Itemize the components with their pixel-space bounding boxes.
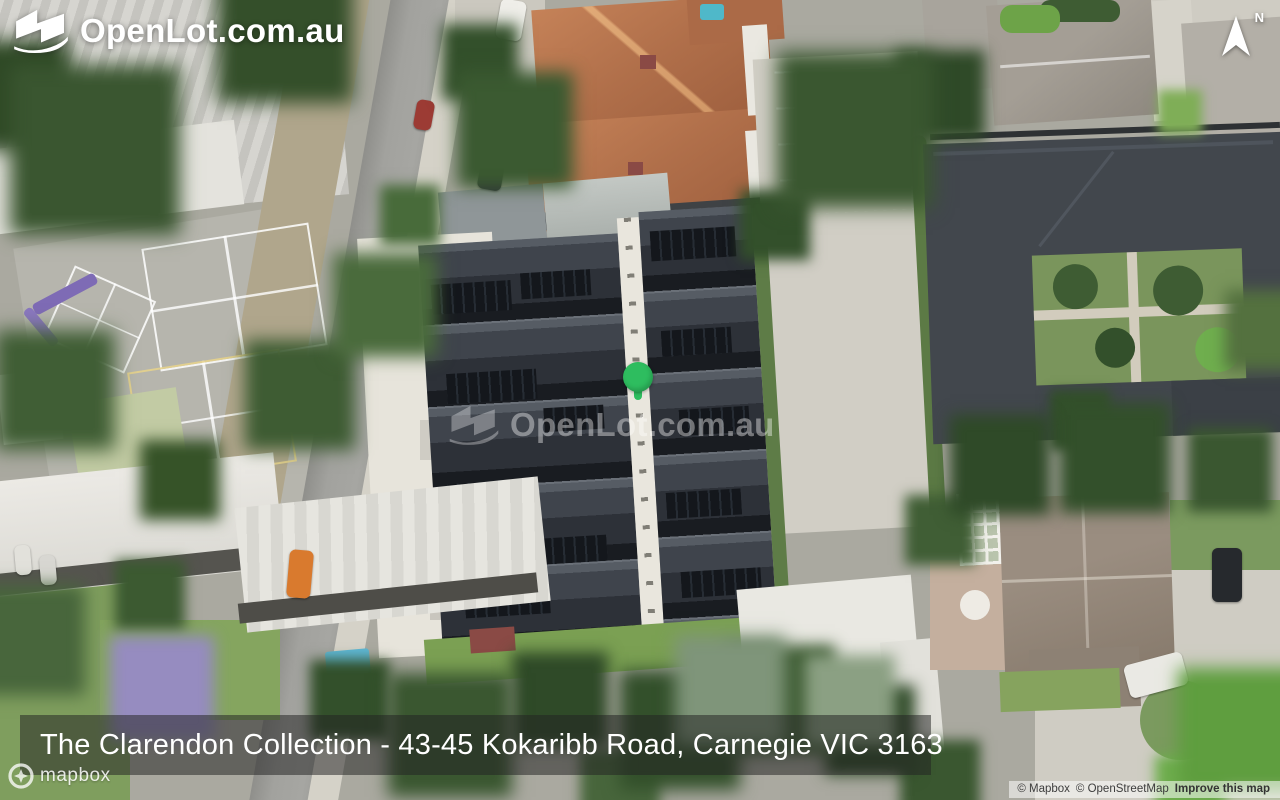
- lawn: [100, 620, 280, 720]
- truck: [286, 549, 314, 599]
- parking-lines: [774, 58, 922, 215]
- car: [477, 146, 508, 192]
- map-attribution: © Mapbox © OpenStreetMap Improve this ma…: [1009, 781, 1280, 798]
- roof-ridge: [1081, 495, 1090, 670]
- north-label: N: [1255, 10, 1264, 25]
- lawn: [999, 668, 1120, 712]
- solar-panels: [650, 226, 737, 261]
- apartment-complex-roof: [923, 132, 1280, 444]
- solar-panels: [679, 406, 750, 436]
- solar-panels: [431, 280, 513, 315]
- garden-path: [1127, 252, 1142, 382]
- garden-feature: [960, 590, 990, 620]
- solar-panels: [661, 327, 732, 357]
- hedge-row: [1000, 5, 1060, 33]
- logo-text: OpenLot.com.au: [80, 12, 345, 50]
- address-bar: The Clarendon Collection - 43-45 Kokarib…: [20, 715, 931, 775]
- solar-panels: [543, 405, 604, 433]
- chimney: [628, 162, 643, 175]
- house-roof-red: [469, 626, 516, 653]
- mapbox-icon: [8, 763, 34, 789]
- mapbox-wordmark: mapbox: [40, 765, 111, 787]
- mapbox-logo[interactable]: mapbox: [8, 763, 111, 789]
- solar-panels: [520, 269, 591, 299]
- roof-ridge: [933, 140, 1273, 156]
- sports-court: [141, 223, 327, 372]
- openlot-flag-icon: [12, 8, 70, 54]
- map-viewport: OpenLot.com.au OpenLot.com.au N The Clar…: [0, 0, 1280, 800]
- improve-map-link[interactable]: Improve this map: [1175, 783, 1270, 795]
- roof-facet: [1171, 377, 1280, 436]
- tree: [1052, 263, 1099, 310]
- tree: [1094, 327, 1135, 368]
- tree: [1194, 326, 1241, 373]
- satellite-imagery[interactable]: [0, 0, 1280, 800]
- openlot-logo[interactable]: OpenLot.com.au: [12, 8, 345, 54]
- solar-panels: [446, 369, 538, 404]
- north-compass: N: [1214, 8, 1266, 66]
- car: [39, 554, 58, 585]
- house-roof-brown: [999, 492, 1175, 673]
- swimming-pool: [325, 648, 371, 680]
- address-text: The Clarendon Collection - 43-45 Kokarib…: [40, 729, 943, 762]
- roof-ridge: [1038, 151, 1114, 247]
- solar-panels: [666, 488, 742, 519]
- building-roof: [0, 369, 63, 445]
- car: [1212, 548, 1242, 602]
- attribution-mapbox-link[interactable]: © Mapbox: [1017, 783, 1070, 795]
- car: [14, 544, 33, 575]
- trampoline: [700, 4, 724, 20]
- courtyard-garden: [1032, 248, 1246, 385]
- attribution-osm-link[interactable]: © OpenStreetMap: [1076, 783, 1169, 795]
- property-marker[interactable]: [623, 362, 653, 392]
- chimney: [640, 55, 656, 69]
